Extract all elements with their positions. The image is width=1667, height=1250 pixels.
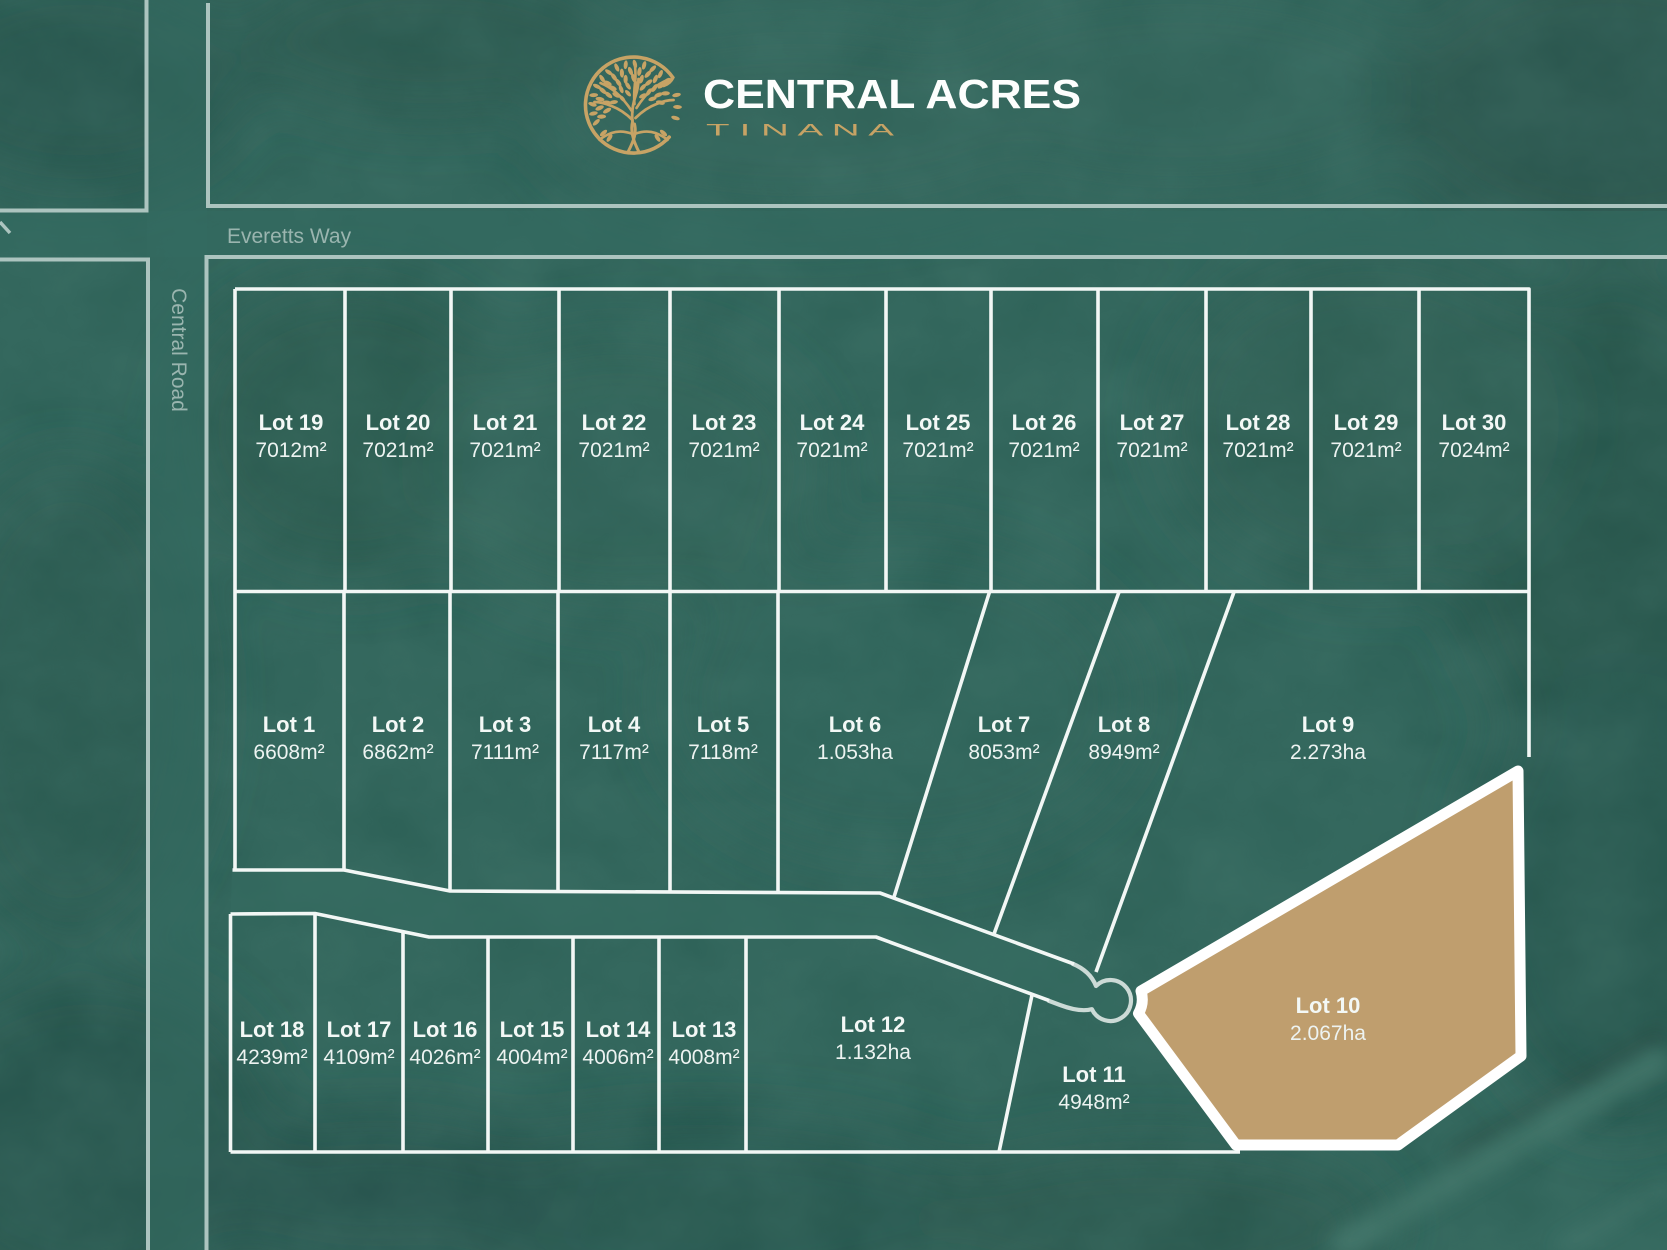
svg-text:Lot 9: Lot 9 — [1302, 712, 1355, 737]
svg-text:Everetts Way: Everetts Way — [227, 225, 352, 248]
svg-text:7111m²: 7111m² — [471, 741, 539, 764]
svg-text:T I N A N A: T I N A N A — [706, 122, 894, 140]
svg-text:7021m²: 7021m² — [1222, 439, 1293, 462]
svg-text:Lot 26: Lot 26 — [1012, 410, 1077, 435]
svg-text:4026m²: 4026m² — [409, 1046, 480, 1069]
svg-text:7021m²: 7021m² — [469, 439, 540, 462]
svg-text:8949m²: 8949m² — [1088, 741, 1159, 764]
svg-text:4109m²: 4109m² — [323, 1046, 394, 1069]
svg-text:7021m²: 7021m² — [1116, 439, 1187, 462]
svg-text:Lot 5: Lot 5 — [697, 712, 750, 737]
svg-text:4006m²: 4006m² — [582, 1046, 653, 1069]
svg-text:Lot 7: Lot 7 — [978, 712, 1031, 737]
svg-text:Lot 30: Lot 30 — [1442, 410, 1507, 435]
svg-text:Lot 1: Lot 1 — [263, 712, 316, 737]
svg-text:7021m²: 7021m² — [796, 439, 867, 462]
svg-text:Lot 29: Lot 29 — [1334, 410, 1399, 435]
svg-text:7021m²: 7021m² — [578, 439, 649, 462]
svg-text:Lot 13: Lot 13 — [672, 1017, 737, 1042]
svg-text:Lot 14: Lot 14 — [586, 1017, 652, 1042]
svg-text:1.053ha: 1.053ha — [817, 741, 893, 764]
svg-text:1.132ha: 1.132ha — [835, 1041, 911, 1064]
svg-text:Lot 22: Lot 22 — [582, 410, 647, 435]
svg-text:Lot 18: Lot 18 — [240, 1017, 305, 1042]
svg-text:7021m²: 7021m² — [362, 439, 433, 462]
svg-text:4004m²: 4004m² — [496, 1046, 567, 1069]
svg-text:Lot 24: Lot 24 — [800, 410, 866, 435]
svg-text:Lot 3: Lot 3 — [479, 712, 532, 737]
svg-text:7021m²: 7021m² — [688, 439, 759, 462]
svg-text:8053m²: 8053m² — [968, 741, 1039, 764]
svg-text:Lot 15: Lot 15 — [500, 1017, 565, 1042]
svg-text:6608m²: 6608m² — [253, 741, 324, 764]
svg-text:Lot 25: Lot 25 — [906, 410, 971, 435]
svg-text:CENTRAL ACRES: CENTRAL ACRES — [703, 71, 1081, 117]
svg-text:Lot 2: Lot 2 — [372, 712, 425, 737]
svg-text:7024m²: 7024m² — [1438, 439, 1509, 462]
svg-text:4239m²: 4239m² — [236, 1046, 307, 1069]
svg-text:7118m²: 7118m² — [688, 741, 758, 764]
svg-text:Lot 10: Lot 10 — [1296, 993, 1361, 1018]
svg-text:2.067ha: 2.067ha — [1290, 1022, 1366, 1045]
svg-text:Lot 19: Lot 19 — [259, 410, 324, 435]
svg-text:7117m²: 7117m² — [579, 741, 649, 764]
svg-text:Lot 12: Lot 12 — [841, 1012, 906, 1037]
svg-text:2.273ha: 2.273ha — [1290, 741, 1366, 764]
svg-text:Central Road: Central Road — [167, 288, 190, 412]
svg-text:7012m²: 7012m² — [255, 439, 326, 462]
svg-text:Lot 4: Lot 4 — [588, 712, 641, 737]
svg-text:Lot 6: Lot 6 — [829, 712, 882, 737]
svg-text:4948m²: 4948m² — [1058, 1091, 1129, 1114]
svg-text:Lot 17: Lot 17 — [327, 1017, 392, 1042]
svg-text:7021m²: 7021m² — [1008, 439, 1079, 462]
svg-text:Lot 16: Lot 16 — [413, 1017, 478, 1042]
svg-text:7021m²: 7021m² — [902, 439, 973, 462]
svg-text:Lot 21: Lot 21 — [473, 410, 538, 435]
svg-text:Lot 27: Lot 27 — [1120, 410, 1185, 435]
svg-text:Lot 20: Lot 20 — [366, 410, 431, 435]
svg-text:7021m²: 7021m² — [1330, 439, 1401, 462]
svg-text:6862m²: 6862m² — [362, 741, 433, 764]
svg-text:Lot 11: Lot 11 — [1062, 1062, 1126, 1087]
svg-text:4008m²: 4008m² — [668, 1046, 739, 1069]
svg-text:Lot 8: Lot 8 — [1098, 712, 1151, 737]
svg-text:Lot 28: Lot 28 — [1226, 410, 1291, 435]
svg-text:Lot 23: Lot 23 — [692, 410, 757, 435]
